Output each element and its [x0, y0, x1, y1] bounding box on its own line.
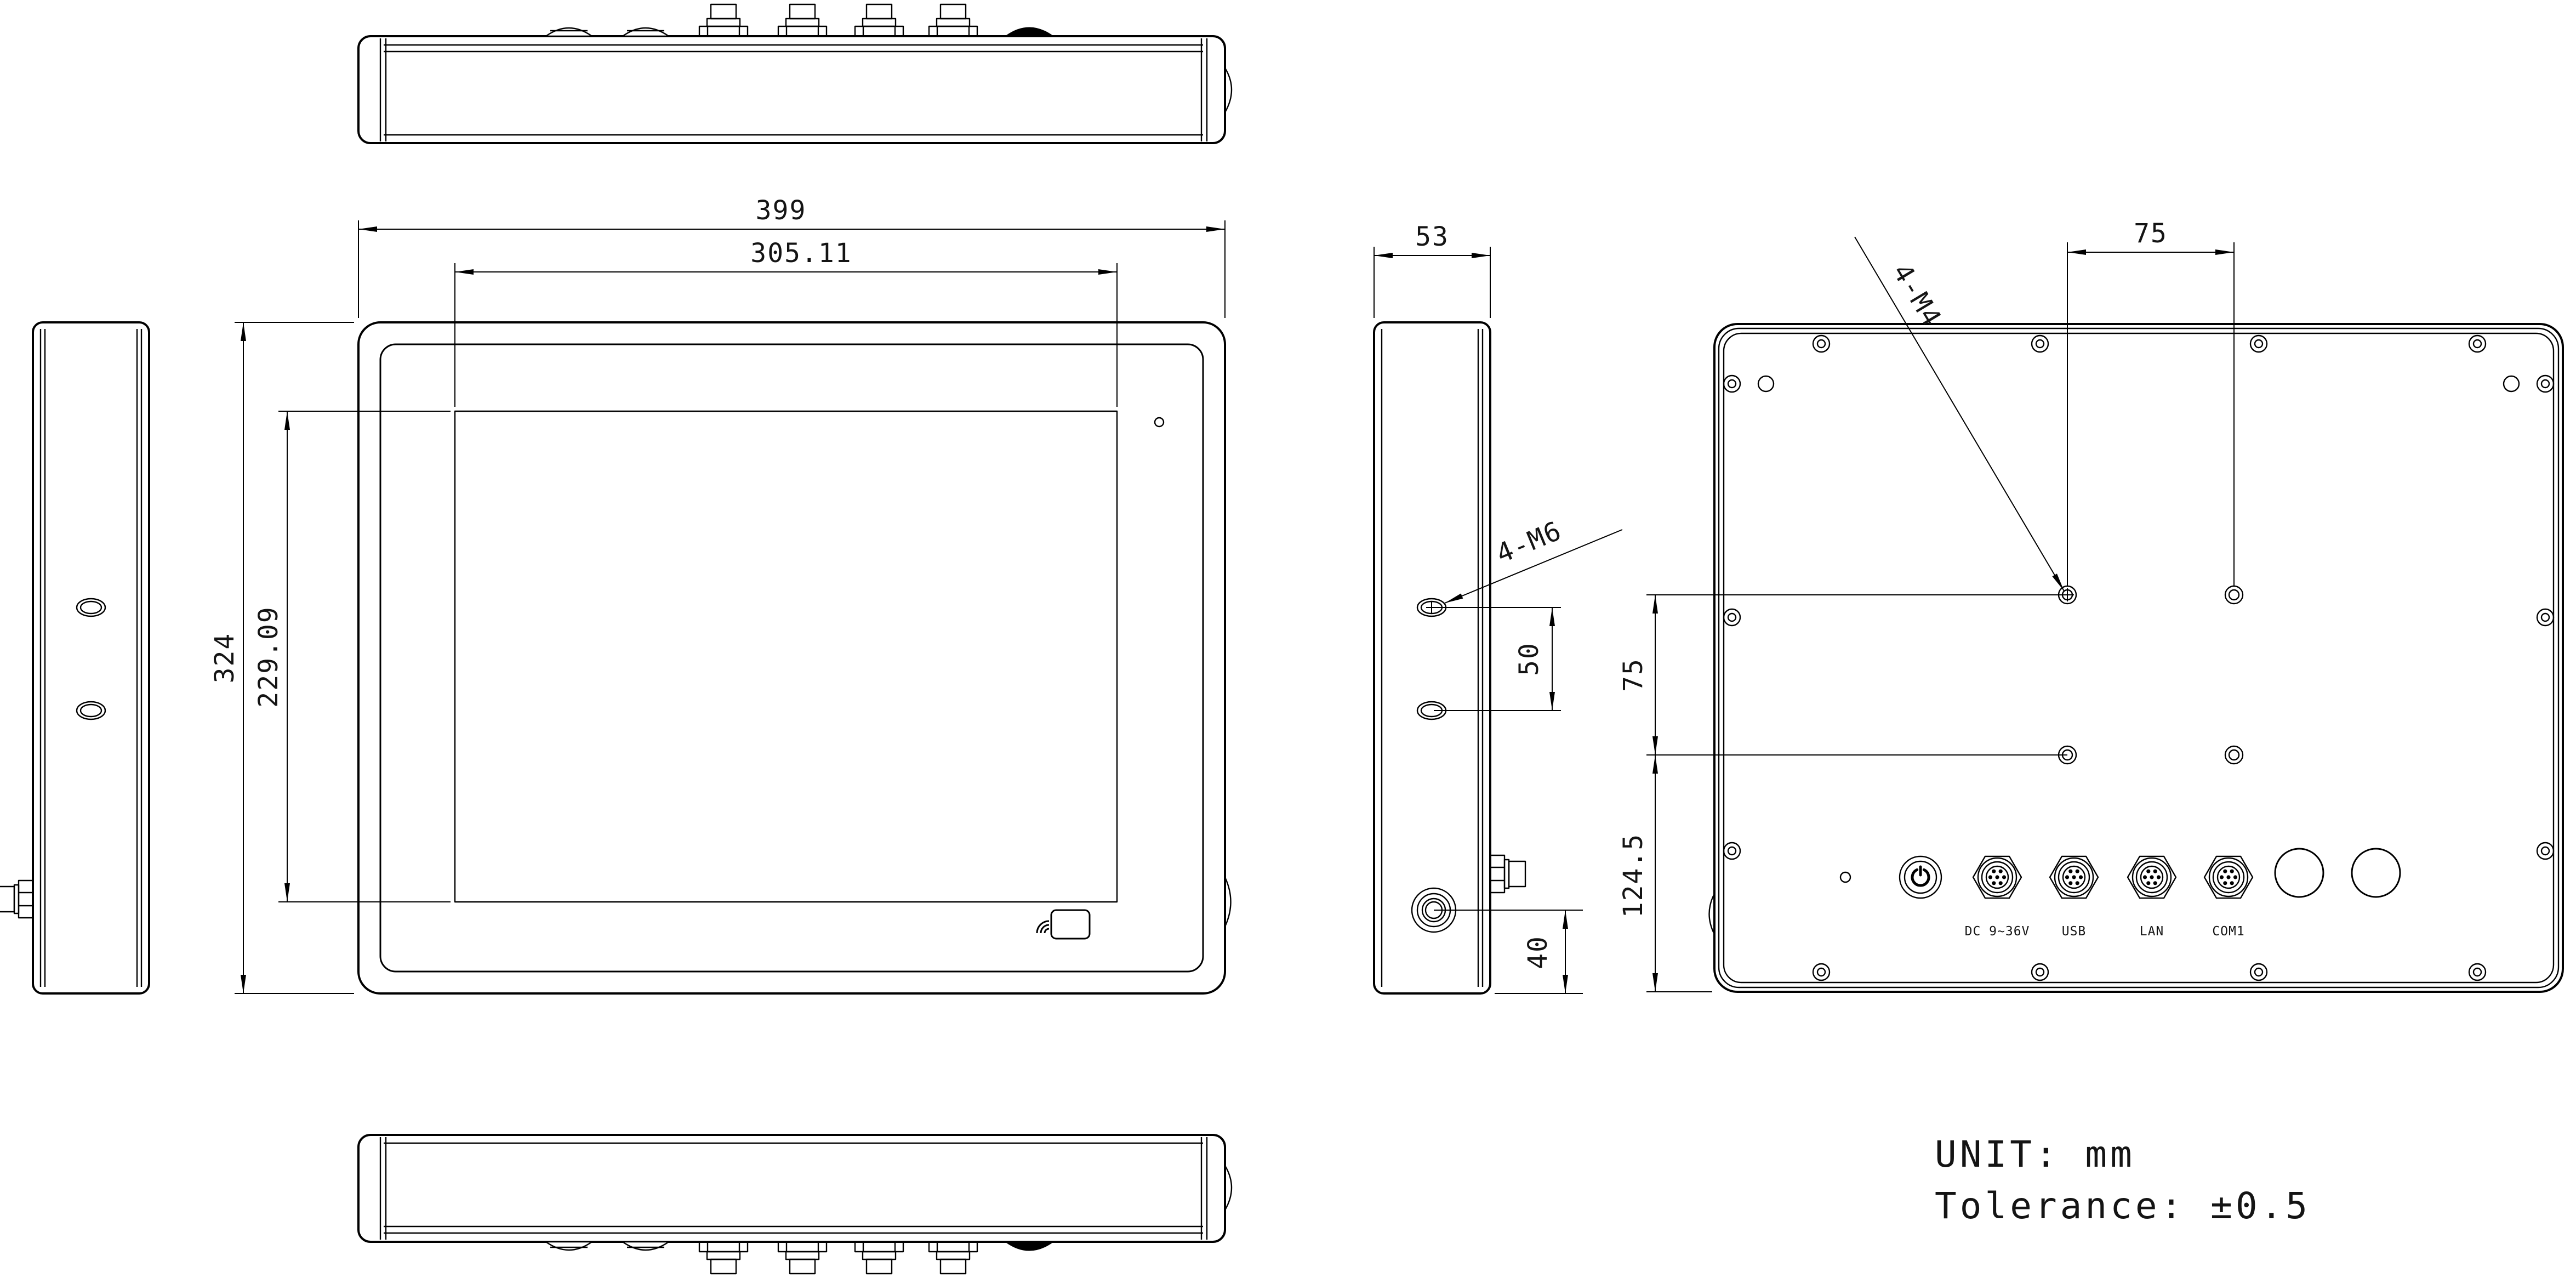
port-label-com: COM1 [2212, 924, 2244, 939]
callout-vesa-thread: 4-M4 [1855, 237, 2064, 591]
title-notes: UNIT: mm Tolerance: ±0.5 [1935, 1133, 2311, 1227]
vesa-holes [2059, 586, 2243, 764]
callout-label-vesa-thread: 4-M4 [1887, 258, 1948, 332]
dim-label-depth: 53 [1415, 221, 1449, 252]
port-label-usb: USB [2062, 924, 2087, 939]
blank-gland-icon [2275, 849, 2323, 897]
dome-bump-icon [546, 1242, 1052, 1250]
m12-dc-connector-icon [1973, 856, 2021, 898]
blank-gland-icon [2352, 849, 2400, 897]
rear-screw-holes [1724, 336, 2554, 980]
dim-label-vesa-horizontal: 75 [2134, 218, 2168, 249]
display-active-area [455, 411, 1117, 902]
dim-display-height: 229.09 [253, 411, 451, 902]
dome-bump-icon [546, 28, 1052, 36]
dim-side-hole-spacing: 50 [1434, 607, 1561, 711]
callout-side-thread: 4-M6 [1445, 515, 1622, 603]
engineering-drawing: 399 305.11 324 229.09 53 [0, 0, 2576, 1278]
light-sensor-icon [1155, 418, 1164, 427]
m12-side-plug-icon [1490, 855, 1525, 893]
dim-label-front-height: 324 [209, 633, 240, 684]
left-side-view [0, 322, 149, 993]
m12-usb-connector-icon [2050, 856, 2098, 898]
dim-rear-bottom-offset: 124.5 [1618, 755, 1712, 992]
rear-io-row: DC 9~36V USB LAN COM1 [1840, 849, 2400, 939]
dim-vesa-horizontal: 75 [2067, 218, 2234, 586]
touch-glass [380, 344, 1203, 972]
unit-note: UNIT: mm [1935, 1133, 2135, 1175]
dim-depth: 53 [1374, 221, 1490, 318]
tolerance-note: Tolerance: ±0.5 [1935, 1185, 2311, 1227]
m12-plug-bottom-icons [699, 1242, 977, 1274]
dim-label-display-height: 229.09 [253, 606, 284, 707]
side-mount-hole [77, 599, 105, 616]
plug-hole [1758, 376, 1774, 391]
dim-label-vesa-vertical: 75 [1618, 658, 1649, 692]
rear-view: DC 9~36V USB LAN COM1 [1709, 324, 2563, 992]
m12-plug-top-icons [699, 4, 977, 36]
right-side-view [1374, 322, 1525, 993]
port-label-dc: DC 9~36V [1965, 924, 2030, 939]
front-view [358, 322, 1231, 993]
drawing-canvas: 399 305.11 324 229.09 53 [0, 0, 2576, 1278]
dim-label-rear-bottom-offset: 124.5 [1618, 833, 1649, 918]
top-view [358, 4, 1232, 143]
dim-vesa-vertical: 75 [1618, 595, 2067, 755]
dim-label-display-width: 305.11 [750, 238, 852, 269]
dim-label-side-hole-spacing: 50 [1514, 642, 1545, 676]
side-mount-hole [77, 702, 105, 719]
dim-label-front-width: 399 [756, 195, 807, 226]
dim-label-antenna-offset: 40 [1523, 935, 1553, 969]
dim-antenna-offset: 40 [1434, 910, 1583, 993]
m12-com-connector-icon [2204, 856, 2253, 898]
bottom-view [358, 1135, 1232, 1274]
plug-hole [2504, 376, 2519, 391]
power-button-icon [1900, 856, 1941, 898]
nfc-icon [1037, 910, 1090, 939]
m12-lan-connector-icon [2128, 856, 2176, 898]
callout-label-side-thread: 4-M6 [1492, 515, 1566, 570]
m12-side-plug-icon [0, 881, 33, 918]
reset-hole-icon [1840, 872, 1850, 882]
port-label-lan: LAN [2140, 924, 2164, 939]
